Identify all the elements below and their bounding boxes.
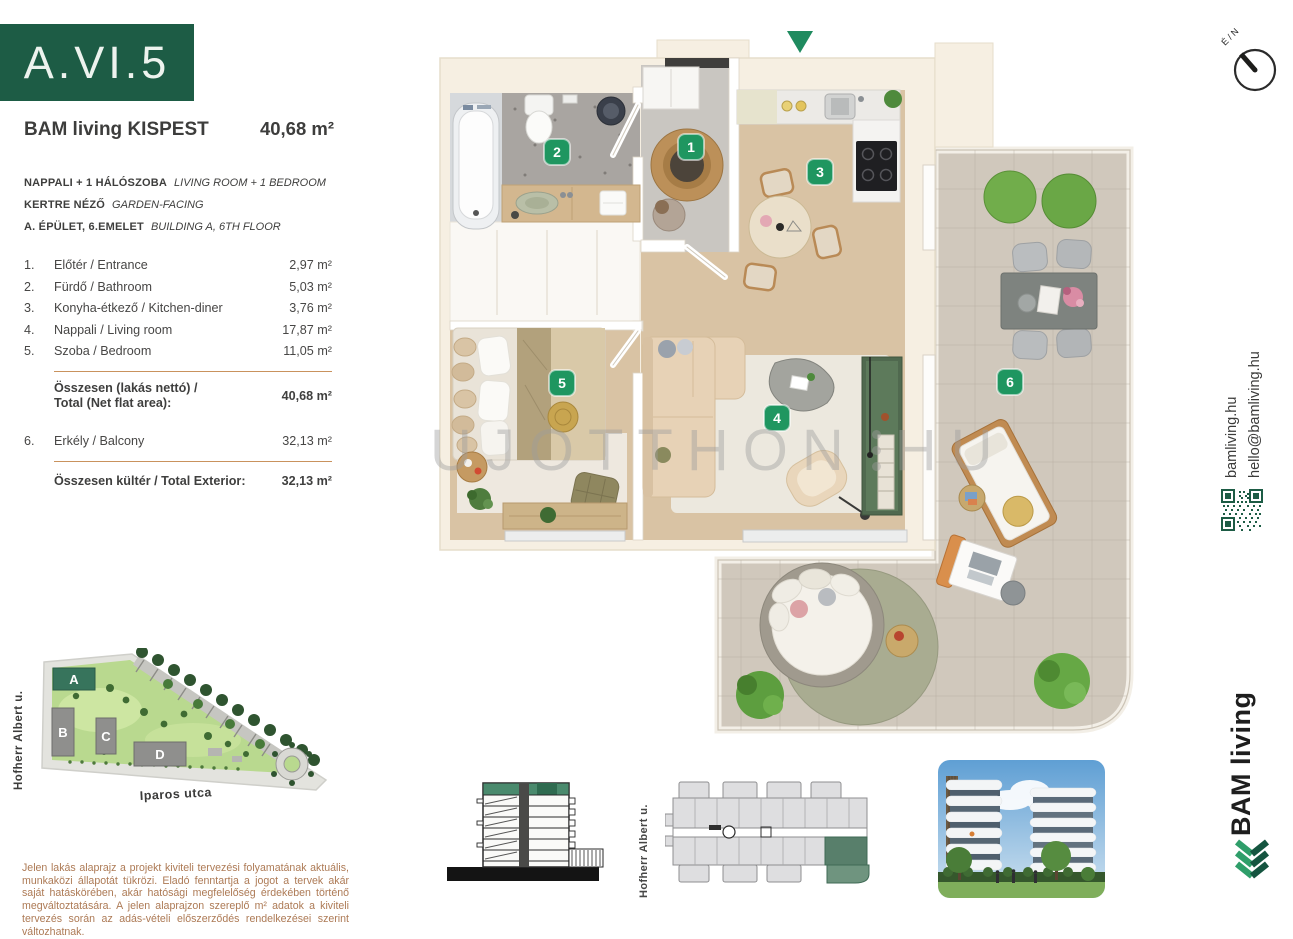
toilet [525, 95, 553, 143]
washing-machine [597, 97, 625, 125]
floor-plan: 1 2 3 4 5 6 [435, 25, 1135, 740]
brand-wordmark: BAM living [1226, 658, 1270, 836]
highlighted-unit-balcony [827, 865, 869, 883]
subtitle-line: A. ÉPÜLET, 6.EMELETBUILDING A, 6TH FLOOR [24, 216, 354, 238]
building-a: A [53, 668, 95, 690]
wicker-stool [959, 485, 985, 511]
building-d: D [134, 742, 186, 766]
project-title: BAM living KISPEST [24, 119, 209, 141]
table-row: 3.Konyha-étkező / Kitchen-diner3,76 m² [24, 301, 332, 323]
table-row: 5.Szoba / Bedroom11,05 m² [24, 344, 332, 366]
qr-code [1221, 489, 1263, 531]
room-marker-4: 4 [764, 405, 790, 431]
highlighted-unit [825, 837, 867, 865]
bush [984, 171, 1036, 223]
room-marker-1: 1 [678, 134, 704, 160]
building-photo [938, 760, 1105, 898]
subtitle-line: NAPPALI + 1 HÁLÓSZOBALIVING ROOM + 1 BED… [24, 172, 354, 194]
table-row: 4.Nappali / Living room17,87 m² [24, 323, 332, 345]
round-daybed [760, 563, 884, 687]
disclaimer-text: Jelen lakás alaprajz a projekt kiviteli … [22, 862, 349, 939]
table-row: 1.Előtér / Entrance2,97 m² [24, 258, 332, 280]
bedroom-window [505, 531, 625, 541]
compass: É / N [1215, 28, 1285, 98]
subtitle-line: KERTRE NÉZŐGARDEN-FACING [24, 194, 354, 216]
contact-links: bamliving.hu hello@bamliving.hu [1221, 337, 1268, 478]
table-row: 2.Fürdő / Bathroom5,03 m² [24, 280, 332, 302]
svg-text:3: 3 [816, 164, 824, 180]
grass [938, 882, 1105, 898]
site-map: A B C D Hofherr Albert u. Iparos utca [8, 648, 340, 844]
total-area-value: 40,68 m² [260, 118, 334, 140]
unit-code: A.VI.5 [24, 37, 171, 89]
pouf [886, 625, 918, 657]
room-marker-3: 3 [807, 159, 833, 185]
building-b: B [52, 708, 74, 756]
round-rug [548, 402, 578, 432]
kitchen-counter [737, 90, 902, 124]
svg-text:C: C [101, 729, 111, 744]
room-marker-5: 5 [549, 370, 575, 396]
core-shaft [519, 783, 529, 867]
net-total: Összesen (lakás nettó) /Total (Net flat … [54, 381, 332, 412]
floorplate-diagram [665, 778, 880, 886]
window-seat [503, 503, 627, 529]
compass-label: É / N [1219, 28, 1240, 47]
divider [54, 371, 332, 372]
brand-chevrons-logo [1231, 836, 1273, 886]
entrance-arrow [787, 31, 813, 53]
svg-text:B: B [58, 725, 67, 740]
bed [452, 328, 605, 460]
room-marker-6: 6 [997, 369, 1023, 395]
exterior-total: Összesen kültér / Total Exterior: 32,13 … [54, 474, 332, 490]
balcony-door [923, 355, 935, 540]
section-drawing [445, 775, 610, 905]
pouf [1001, 581, 1025, 605]
svg-text:4: 4 [773, 410, 781, 426]
kitchen-window [923, 165, 935, 250]
svg-text:A: A [69, 672, 79, 687]
cistern-button [563, 95, 577, 103]
building-c: C [96, 718, 116, 754]
built-in-closet [450, 222, 640, 323]
svg-text:5: 5 [558, 375, 566, 391]
shelf-unit [862, 357, 902, 515]
corridor [673, 828, 867, 837]
low-wing [569, 849, 603, 867]
table-row: 6.Erkély / Balcony32,13 m² [24, 434, 332, 456]
email-link[interactable]: hello@bamliving.hu [1244, 337, 1267, 478]
street-label-iparos: Iparos utca [139, 785, 212, 803]
vanity [502, 185, 640, 222]
living-window [743, 530, 907, 542]
ground-line [447, 867, 599, 881]
bedside-table [457, 452, 487, 482]
svg-text:6: 6 [1006, 374, 1014, 390]
svg-text:D: D [155, 747, 164, 762]
svg-text:1: 1 [687, 139, 695, 155]
street-label-hofherr: Hofherr Albert u. [13, 691, 25, 790]
divider [54, 461, 332, 462]
room-table: 1.Előtér / Entrance2,97 m² 2.Fürdő / Bat… [24, 258, 332, 489]
header: BAM living KISPEST 40,68 m² [24, 118, 334, 141]
cooktop [853, 120, 900, 202]
unit-code-box: A.VI.5 [0, 24, 194, 101]
stair-wing [935, 43, 993, 147]
street-label-bottom: Hofherr Albert u. [638, 776, 660, 898]
hall-pouf [653, 199, 685, 231]
apartment-subtitle: NAPPALI + 1 HÁLÓSZOBALIVING ROOM + 1 BED… [24, 172, 354, 238]
bathtub [453, 103, 499, 229]
bush [1042, 174, 1096, 228]
svg-text:2: 2 [553, 144, 561, 160]
room-marker-2: 2 [544, 139, 570, 165]
website-link[interactable]: bamliving.hu [1221, 337, 1244, 478]
